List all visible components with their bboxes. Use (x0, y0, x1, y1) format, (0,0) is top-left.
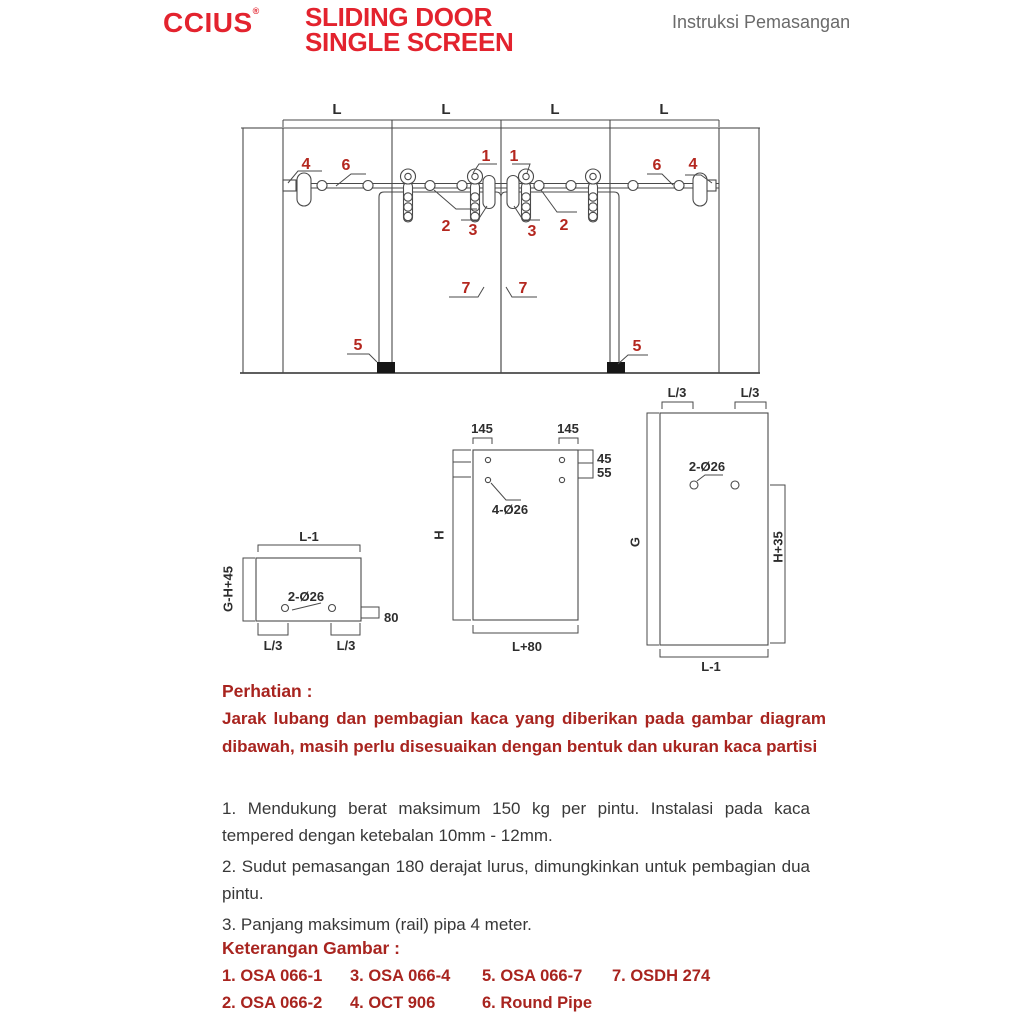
callout-6-left: 6 (342, 157, 351, 174)
roller-hanger (586, 169, 601, 222)
roller-hanger (401, 169, 416, 222)
fig2-dim-bottom: L+80 (512, 639, 542, 654)
fig1-hole-label: 2-Ø26 (288, 589, 324, 604)
fig1-dim-bottom-right: L/3 (337, 638, 356, 653)
note-item-3: 3. Panjang maksimum (rail) pipa 4 meter. (222, 911, 810, 938)
callout-1-b: 1 (510, 148, 519, 165)
warning-paragraph: Jarak lubang dan pembagian kaca yang dib… (222, 705, 826, 760)
legend-item: 2. OSA 066-2 (222, 994, 350, 1021)
callout-numbers: 4 6 1 1 2 3 3 2 6 4 7 7 5 5 (302, 148, 698, 355)
door-stop-left (483, 176, 495, 209)
callout-6-right: 6 (653, 157, 662, 174)
callout-2-left: 2 (442, 218, 451, 235)
callout-5-right: 5 (633, 338, 642, 355)
fig3-dim-top-right: L/3 (741, 385, 760, 400)
fig1-dim-top: L-1 (299, 529, 319, 544)
wall-left (243, 128, 283, 373)
floor-guide-right (607, 362, 625, 373)
fig1-dim-bottom-left: L/3 (264, 638, 283, 653)
fig3-dim-top-left: L/3 (668, 385, 687, 400)
legend-item: 4. OCT 906 (350, 994, 482, 1021)
fig3-dim-left: G (627, 537, 642, 547)
note-item-1: 1. Mendukung berat maksimum 150 kg per p… (222, 795, 810, 849)
fig2-dim-right-bottom: 55 (597, 465, 611, 480)
fig2-dim-top-left: 145 (471, 421, 493, 436)
roller-hanger (519, 169, 534, 222)
instruction-sheet: CCIUS® SLIDING DOOR SINGLE SCREEN Instru… (0, 0, 1024, 1024)
dim-label-L2: L (441, 101, 450, 118)
legend-item: 6. Round Pipe (482, 994, 612, 1021)
callout-4-right: 4 (689, 156, 698, 173)
fig3-dim-right: H+35 (770, 531, 785, 562)
callout-3-left: 3 (469, 222, 478, 239)
wall-bracket-left (297, 173, 311, 206)
legend-heading: Keterangan Gambar : (222, 938, 400, 959)
callout-5-left: 5 (354, 337, 363, 354)
legend-item: 7. OSDH 274 (612, 967, 710, 994)
dim-label-L3: L (550, 101, 559, 118)
fig2-dim-left: H (431, 530, 446, 539)
fig3-dim-bottom: L-1 (701, 659, 721, 674)
drill-hole (731, 481, 739, 489)
legend-item: 5. OSA 066-7 (482, 967, 612, 994)
fig1-dim-right: 80 (384, 610, 398, 625)
roller-hanger (468, 169, 483, 222)
floor-guide-left (377, 362, 395, 373)
drill-hole (485, 457, 490, 462)
legend-list: 1. OSA 066-1 2. OSA 066-2 3. OSA 066-4 4… (222, 967, 710, 1021)
span-dimension: L L L L (283, 101, 719, 127)
callout-7-left: 7 (462, 280, 471, 297)
detail-figure-door-mid: 145 145 45 55 H 4-Ø26 L+80 (431, 421, 611, 654)
callout-7-right: 7 (519, 280, 528, 297)
drill-hole (690, 481, 698, 489)
detail-figure-door-right: L/3 L/3 G 2-Ø26 H+35 L-1 (627, 385, 785, 674)
note-item-2: 2. Sudut pemasangan 180 derajat lurus, d… (222, 853, 810, 907)
drill-hole (282, 605, 289, 612)
door-panel-left (379, 192, 501, 373)
callout-3-right: 3 (528, 223, 537, 240)
wall-right (719, 128, 759, 373)
main-assembly-diagram: L L L L (240, 101, 760, 373)
drill-hole (329, 605, 336, 612)
detail-figure-plate: L-1 G-H+45 2-Ø26 80 L/3 L/3 (220, 529, 398, 653)
dim-label-L4: L (659, 101, 668, 118)
fig2-hole-label: 4-Ø26 (492, 502, 528, 517)
callout-1-a: 1 (482, 148, 491, 165)
fig3-hole-label: 2-Ø26 (689, 459, 725, 474)
callout-4-left: 4 (302, 156, 311, 173)
legend-item: 3. OSA 066-4 (350, 967, 482, 994)
drill-hole (559, 477, 564, 482)
fig1-dim-left: G-H+45 (220, 566, 235, 612)
door-stop-right (507, 176, 519, 209)
drill-hole (559, 457, 564, 462)
callout-2-right: 2 (560, 217, 569, 234)
fig2-dim-right-top: 45 (597, 451, 611, 466)
drill-hole (485, 477, 490, 482)
fig2-dim-top-right: 145 (557, 421, 579, 436)
attention-heading: Perhatian : (222, 681, 312, 702)
legend-item: 1. OSA 066-1 (222, 967, 350, 994)
dim-label-L1: L (332, 101, 341, 118)
